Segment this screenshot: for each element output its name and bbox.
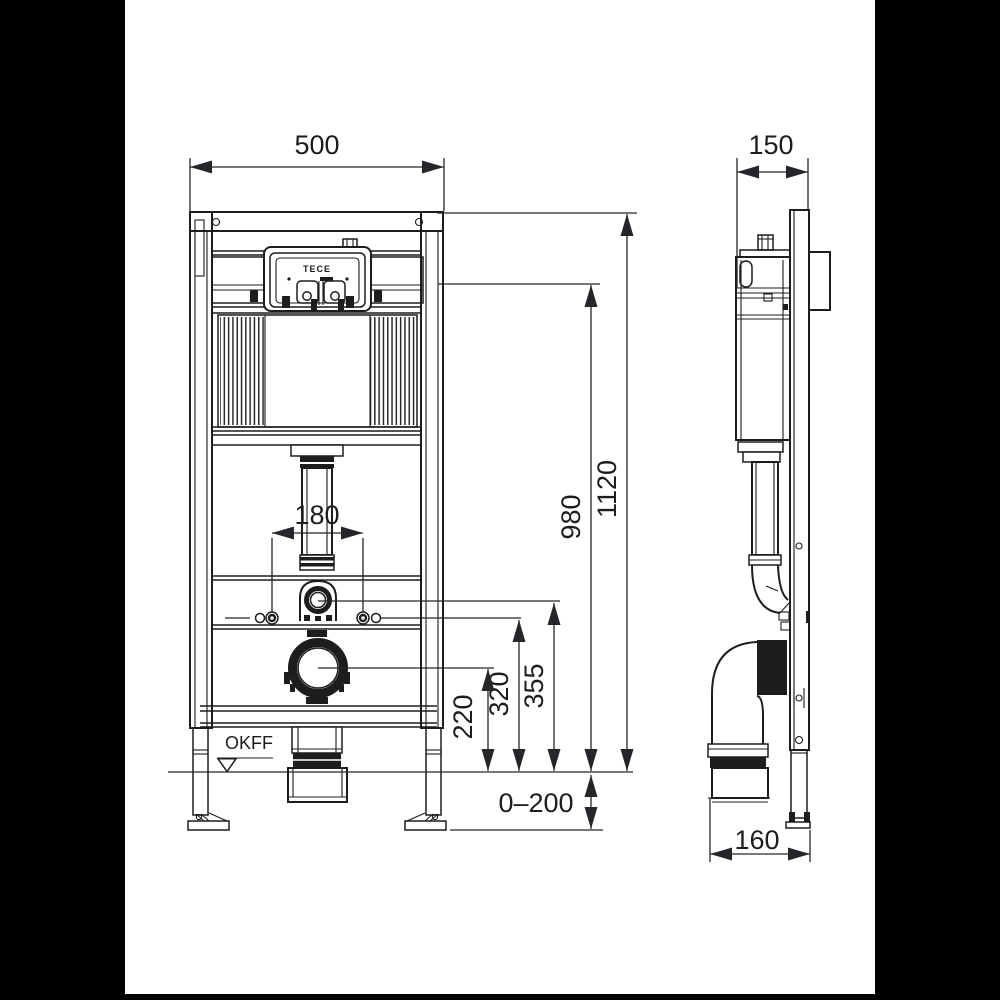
- drain-bracket: [757, 640, 787, 695]
- letterbox-bottom: [0, 994, 1000, 1000]
- dim-label-500: 500: [294, 130, 339, 160]
- drain-pipe: [288, 727, 347, 802]
- bolt-inner-left: [266, 612, 278, 624]
- dim-label-980: 980: [556, 494, 586, 539]
- floor-level-label: OKFF: [225, 733, 273, 753]
- dim-label-160: 160: [734, 825, 779, 855]
- dim-label-220: 220: [448, 694, 478, 739]
- dim-label-180: 180: [294, 500, 339, 530]
- dim-label-1120: 1120: [592, 460, 622, 518]
- insulation-hatch-left: [220, 317, 265, 425]
- letterbox-left: [0, 0, 125, 1000]
- insulation-hatch-right: [370, 317, 415, 425]
- dim-label-0-200: 0–200: [498, 788, 573, 818]
- dim-label-355: 355: [519, 663, 549, 708]
- access-panel: TECE: [264, 247, 371, 311]
- bolt-inner-right: [357, 612, 369, 624]
- dim-label-150: 150: [748, 130, 793, 160]
- drawing-background: [0, 0, 1000, 1000]
- bolt-hole-outer-right: [372, 614, 381, 623]
- brand-logo: TECE: [303, 264, 331, 274]
- bolt-hole-outer-left: [256, 614, 265, 623]
- letterbox-right: [875, 0, 1000, 1000]
- installation-drawing: <438" y1="231" x2="438" y2="728" class="…: [0, 0, 1000, 1000]
